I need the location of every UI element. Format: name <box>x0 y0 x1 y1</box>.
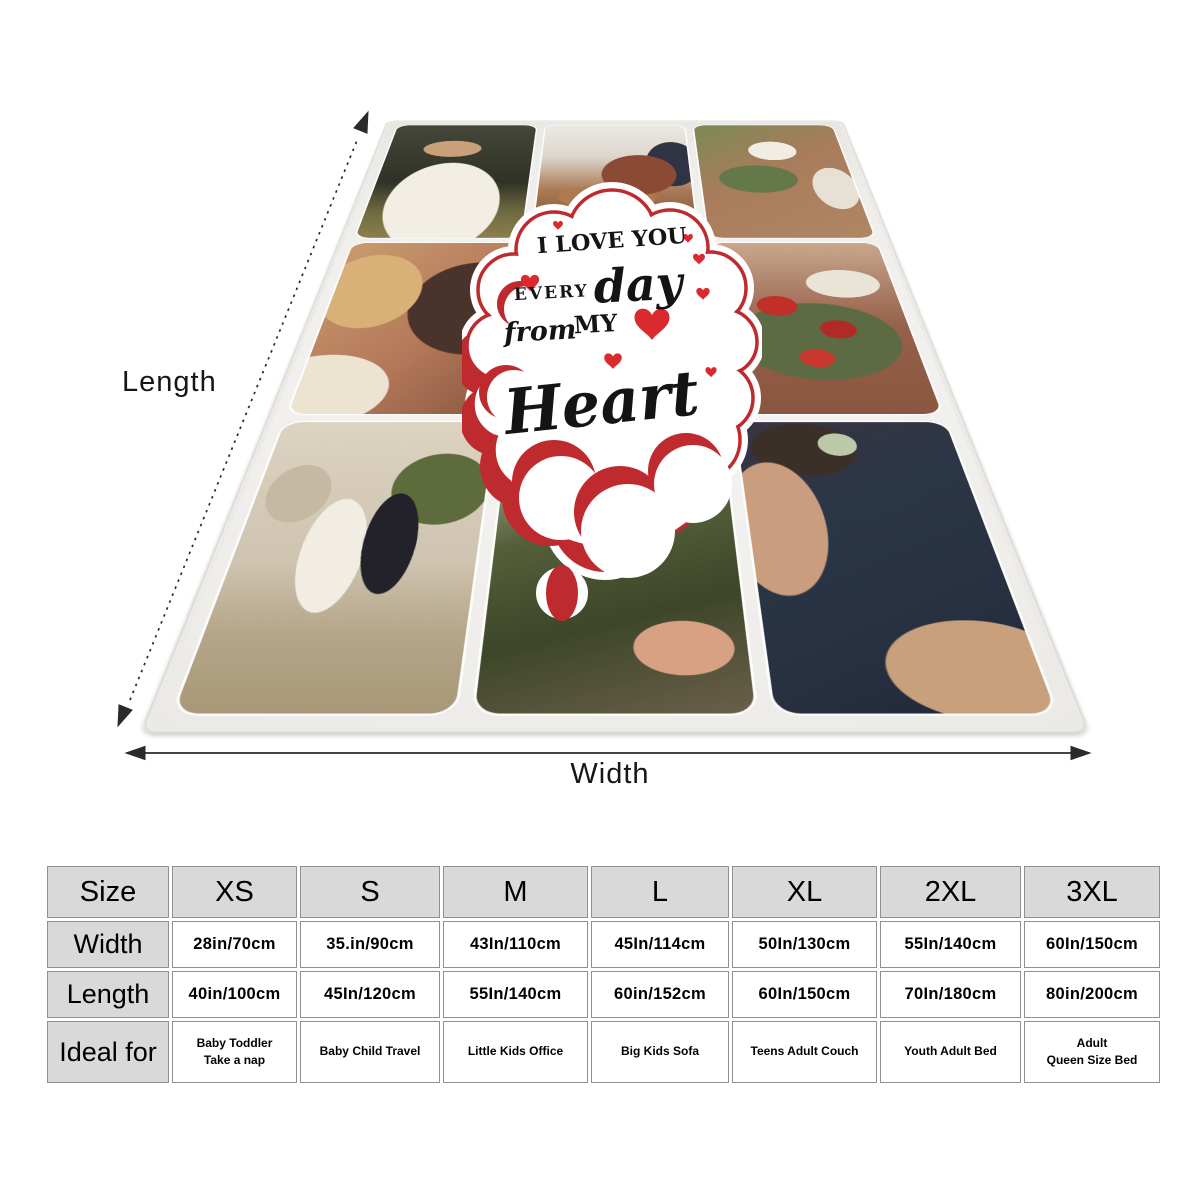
length-value-cell: 60in/152cm <box>591 971 729 1018</box>
width-row-label: Width <box>47 921 169 968</box>
length-value-cell: 40in/100cm <box>172 971 297 1018</box>
ideal-for-cell: Baby Child Travel <box>300 1021 440 1083</box>
size-chart-table: Size XS S M L XL 2XL 3XL Width 28in/70cm… <box>47 866 1153 1083</box>
width-value-cell: 35.in/90cm <box>300 921 440 968</box>
size-chart-header-cell: S <box>300 866 440 918</box>
width-label: Width <box>530 758 690 791</box>
size-chart-header-cell: M <box>443 866 588 918</box>
length-label: Length <box>122 366 217 399</box>
length-value-cell: 55In/140cm <box>443 971 588 1018</box>
ideal-for-cell: Big Kids Sofa <box>591 1021 729 1083</box>
size-chart-header-cell: 3XL <box>1024 866 1160 918</box>
length-value-cell: 45In/120cm <box>300 971 440 1018</box>
size-chart-header-cell: 2XL <box>880 866 1021 918</box>
cloud-line2-script: day <box>592 255 687 314</box>
width-value-cell: 43In/110cm <box>443 921 588 968</box>
width-value-cell: 28in/70cm <box>172 921 297 968</box>
length-value-cell: 70In/180cm <box>880 971 1021 1018</box>
ideal-for-cell: Baby Toddler Take a nap <box>172 1021 297 1083</box>
ideal-for-cell: Little Kids Office <box>443 1021 588 1083</box>
length-arrow <box>112 109 375 728</box>
width-value-cell: 50In/130cm <box>732 921 877 968</box>
length-value-cell: 80in/200cm <box>1024 971 1160 1018</box>
length-row-label: Length <box>47 971 169 1018</box>
size-chart-header-cell: XL <box>732 866 877 918</box>
ideal-for-row-label: Ideal for <box>47 1021 169 1083</box>
width-value-cell: 55In/140cm <box>880 921 1021 968</box>
size-chart-header-cell: XS <box>172 866 297 918</box>
cloud-line3-caps: MY <box>573 308 619 339</box>
size-chart-header-cell: L <box>591 866 729 918</box>
length-value-cell: 60In/150cm <box>732 971 877 1018</box>
cloud-line3-script: from <box>501 314 577 349</box>
width-value-cell: 60In/150cm <box>1024 921 1160 968</box>
size-chart-header-cell: Size <box>47 866 169 918</box>
cloud-line2-prefix: EVERY <box>514 281 590 305</box>
ideal-for-cell: Youth Adult Bed <box>880 1021 1021 1083</box>
ideal-for-cell: Adult Queen Size Bed <box>1024 1021 1160 1083</box>
message-cloud: I LOVE YOU EVERY day from MY Heart <box>462 182 762 627</box>
ideal-for-cell: Teens Adult Couch <box>732 1021 877 1083</box>
product-image: Length Width <box>0 0 1200 1200</box>
width-value-cell: 45In/114cm <box>591 921 729 968</box>
